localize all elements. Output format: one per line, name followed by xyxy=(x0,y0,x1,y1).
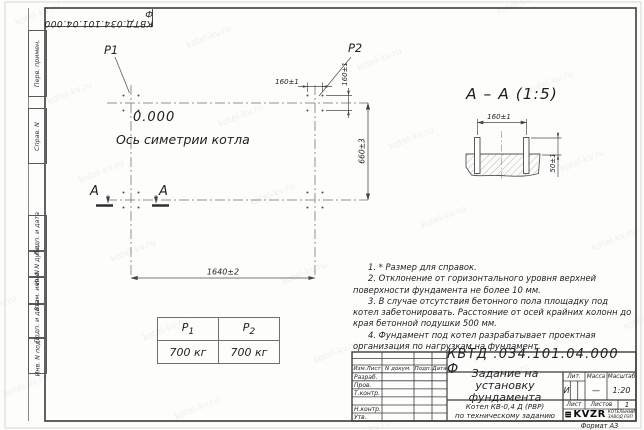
margin-box-podp-data-2: Подп. и дата xyxy=(28,303,47,339)
mass-header: Масса xyxy=(585,374,607,380)
document-title: Задание на установку фундамента xyxy=(448,372,562,400)
note-1: 1. * Размер для справок. xyxy=(353,262,632,273)
scale-value: 1:20 xyxy=(607,386,636,395)
section-title: А – А (1:5) xyxy=(466,85,558,103)
rev-header-n-dokum: N докум. xyxy=(382,366,414,372)
dim-1640-label: 1640±2 xyxy=(207,268,239,277)
drawing-sheet: kotel-kv.ru xyxy=(0,0,644,430)
lit-value: И xyxy=(563,386,570,395)
logo-subtitle-line2: ЗАВОД РЭП xyxy=(608,415,635,420)
load-point-p1-label: P1 xyxy=(104,43,118,57)
margin-box-inv-podl: Инв. N подл. xyxy=(28,337,47,374)
sign-row-razrab: Разраб. xyxy=(354,374,378,381)
sign-row-utv: Утв. xyxy=(354,414,367,421)
product-line-2: по техническому заданию xyxy=(455,411,555,420)
anchor-bolt-right xyxy=(524,138,530,174)
rev-header-podp: Подп. xyxy=(414,366,432,372)
logo-text: KVZR xyxy=(573,409,605,420)
cut-letter-right: А xyxy=(159,184,168,199)
inverted-designation-text: КВТД.034.101.04.000 Ф xyxy=(44,8,153,28)
sign-row-prov: Пров. xyxy=(354,382,371,389)
load-point-p2-label: P2 xyxy=(348,41,362,55)
scale-header: Масштаб xyxy=(607,374,636,380)
load-table-p2-value: 700 кг xyxy=(219,341,280,364)
inverted-designation-stamp: КВТД.034.101.04.000 Ф xyxy=(46,9,153,27)
load-table-p1-value: 700 кг xyxy=(158,341,219,364)
load-table-p2-header: P2 xyxy=(219,318,280,341)
load-table-p1-header: P1 xyxy=(158,318,219,341)
note-3: 3. В случае отсутствия бетонного пола пл… xyxy=(353,296,632,330)
sheet-header: Лист xyxy=(563,402,585,408)
sign-row-tkontr: Т.контр. xyxy=(354,390,380,397)
logo-subtitle: КОТЕЛЬНЫЙ ЗАВОД РЭП xyxy=(608,410,635,420)
mass-value: — xyxy=(585,386,607,395)
dim-160-horizontal-label: 160±1 xyxy=(275,78,299,86)
dim-660-label: 660±3 xyxy=(358,138,367,163)
anchor-bolt-left xyxy=(475,138,481,174)
technical-notes: 1. * Размер для справок. 2. Отклонение о… xyxy=(353,262,632,352)
lit-header: Лит. xyxy=(563,374,585,380)
note-2: 2. Отклонение от горизонтального уровня … xyxy=(353,273,632,296)
load-table-header-row: P1 P2 xyxy=(158,318,280,341)
load-table-value-row: 700 кг 700 кг xyxy=(158,341,280,364)
p2-subscript: 2 xyxy=(249,326,255,337)
dim-160-vertical-label: 160±1 xyxy=(341,62,349,86)
boiler-axis-label: Ось симетрии котла xyxy=(116,132,250,147)
sign-row-nkontr: Н.контр. xyxy=(354,406,381,413)
p1-subscript: 1 xyxy=(188,326,194,337)
margin-box-sprav-n: Справ. N xyxy=(28,108,47,164)
format-label: Формат А3 xyxy=(563,422,636,430)
margin-label: Перв. примен. xyxy=(34,40,41,87)
sheets-header: Листов xyxy=(585,402,618,408)
rev-header-data: Дата xyxy=(432,366,447,372)
rev-header-izm-list: Изм.Лист xyxy=(352,366,382,372)
margin-label: Справ. N xyxy=(34,122,41,151)
product-designation: Котел КВ-0,4 Д (РВР) по техническому зад… xyxy=(448,401,562,420)
manufacturer-logo: KVZR КОТЕЛЬНЫЙ ЗАВОД РЭП xyxy=(565,409,635,420)
load-table: P1 P2 700 кг 700 кг xyxy=(157,317,280,364)
cut-letter-left: А xyxy=(90,184,99,199)
section-dim-160-label: 160±1 xyxy=(487,113,511,121)
margin-label: Инв. N подл. xyxy=(34,335,41,377)
margin-box-perv-primen: Перв. примен. xyxy=(28,30,47,97)
sheets-value: 1 xyxy=(618,401,636,409)
kvzr-logo-icon xyxy=(565,409,571,420)
section-dim-50-label: 50±1 xyxy=(549,153,557,172)
level-mark-label: 0.000 xyxy=(133,110,175,125)
product-line-1: Котел КВ-0,4 Д (РВР) xyxy=(466,402,544,411)
